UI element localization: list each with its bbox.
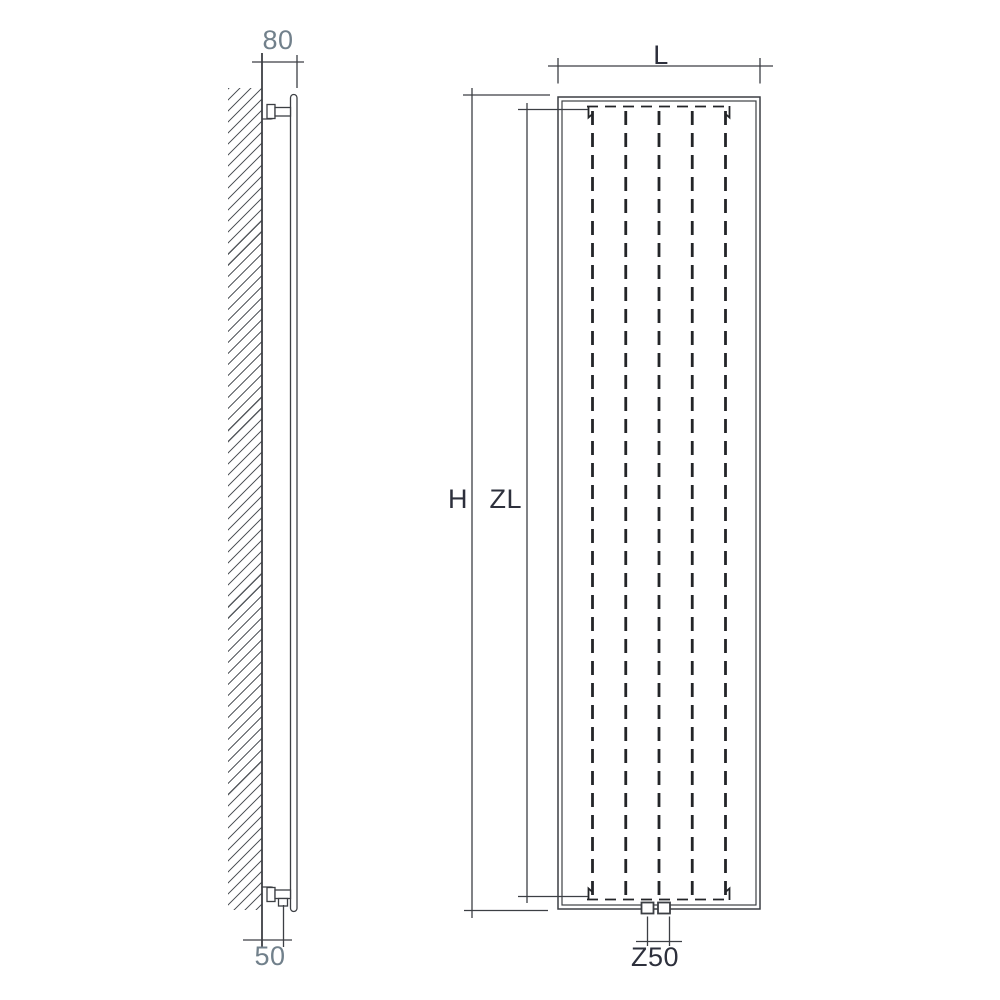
bracket-plate (267, 888, 275, 902)
bracket-bolt (279, 899, 288, 907)
connection-nozzle-left (642, 903, 654, 914)
front-view (558, 97, 760, 914)
element-length-dimension-label: ZL (452, 486, 522, 513)
bottom-wall-bracket (262, 887, 291, 906)
side-view (262, 53, 297, 947)
connection-spacing-dimension-label: Z50 (631, 944, 679, 971)
radiator-front-outline (558, 97, 760, 909)
depth-dimension-label: 80 (262, 27, 293, 54)
radiator-technical-drawing: 80 50 L H ZL Z50 (0, 0, 1000, 1000)
bracket-plate (267, 105, 275, 119)
bracket-arm (275, 890, 291, 899)
bracket-arm (275, 108, 291, 117)
width-dimension-label: L (653, 42, 669, 69)
connection-nozzle-right (658, 903, 670, 914)
offset-dimension-label: 50 (254, 943, 285, 970)
top-wall-bracket (262, 105, 291, 120)
radiator-side-profile (291, 95, 298, 912)
